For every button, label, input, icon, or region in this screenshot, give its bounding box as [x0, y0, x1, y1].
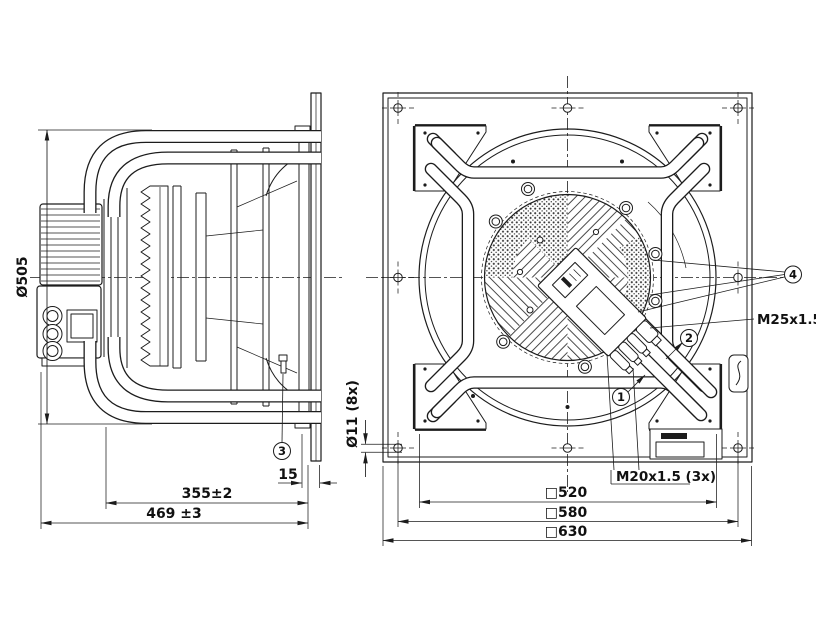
dim-outer-square-label: □630 [545, 524, 588, 540]
side-motor [40, 204, 102, 285]
dim-plate-thickness-label: 15 [278, 467, 297, 483]
side-mounting-plate [295, 93, 321, 461]
label-gland-m25-text: M25x1.5 [757, 312, 816, 328]
callout-1-label: 1 [617, 390, 625, 404]
fan-technical-drawing: Ø505 355±2 469 ±3 15 3 [0, 0, 816, 624]
dim-inner-square-label: □520 [545, 485, 588, 501]
callout-4-label: 4 [789, 268, 797, 282]
dim-motor-depth-label: 355±2 [182, 486, 233, 502]
dim-impeller-diameter-label: Ø505 [15, 256, 31, 297]
side-housing [206, 148, 311, 406]
cable-gland-icon [43, 307, 62, 361]
dim-hole-square-label: □580 [545, 505, 588, 521]
callout-3-label: 3 [278, 444, 286, 458]
drain-fitting [279, 355, 287, 373]
label-gland-m20-text: M20x1.5 (3x) [616, 469, 716, 485]
side-view: Ø505 355±2 469 ±3 15 3 [15, 93, 342, 529]
dim-total-depth-label: 469 ±3 [146, 506, 202, 522]
cable-clip-icon [729, 355, 748, 392]
callout-2-label: 2 [685, 331, 693, 345]
dim-plate-thickness: 15 [278, 434, 337, 488]
dim-mounting-holes-label: Ø11 (8x) [345, 380, 361, 448]
drawing-svg: Ø505 355±2 469 ±3 15 3 [0, 0, 816, 624]
front-view: 1 2 4 M25x1.5 M20x1.5 (3x) Ø11 (8x) [345, 76, 816, 546]
nameplate [650, 429, 722, 459]
